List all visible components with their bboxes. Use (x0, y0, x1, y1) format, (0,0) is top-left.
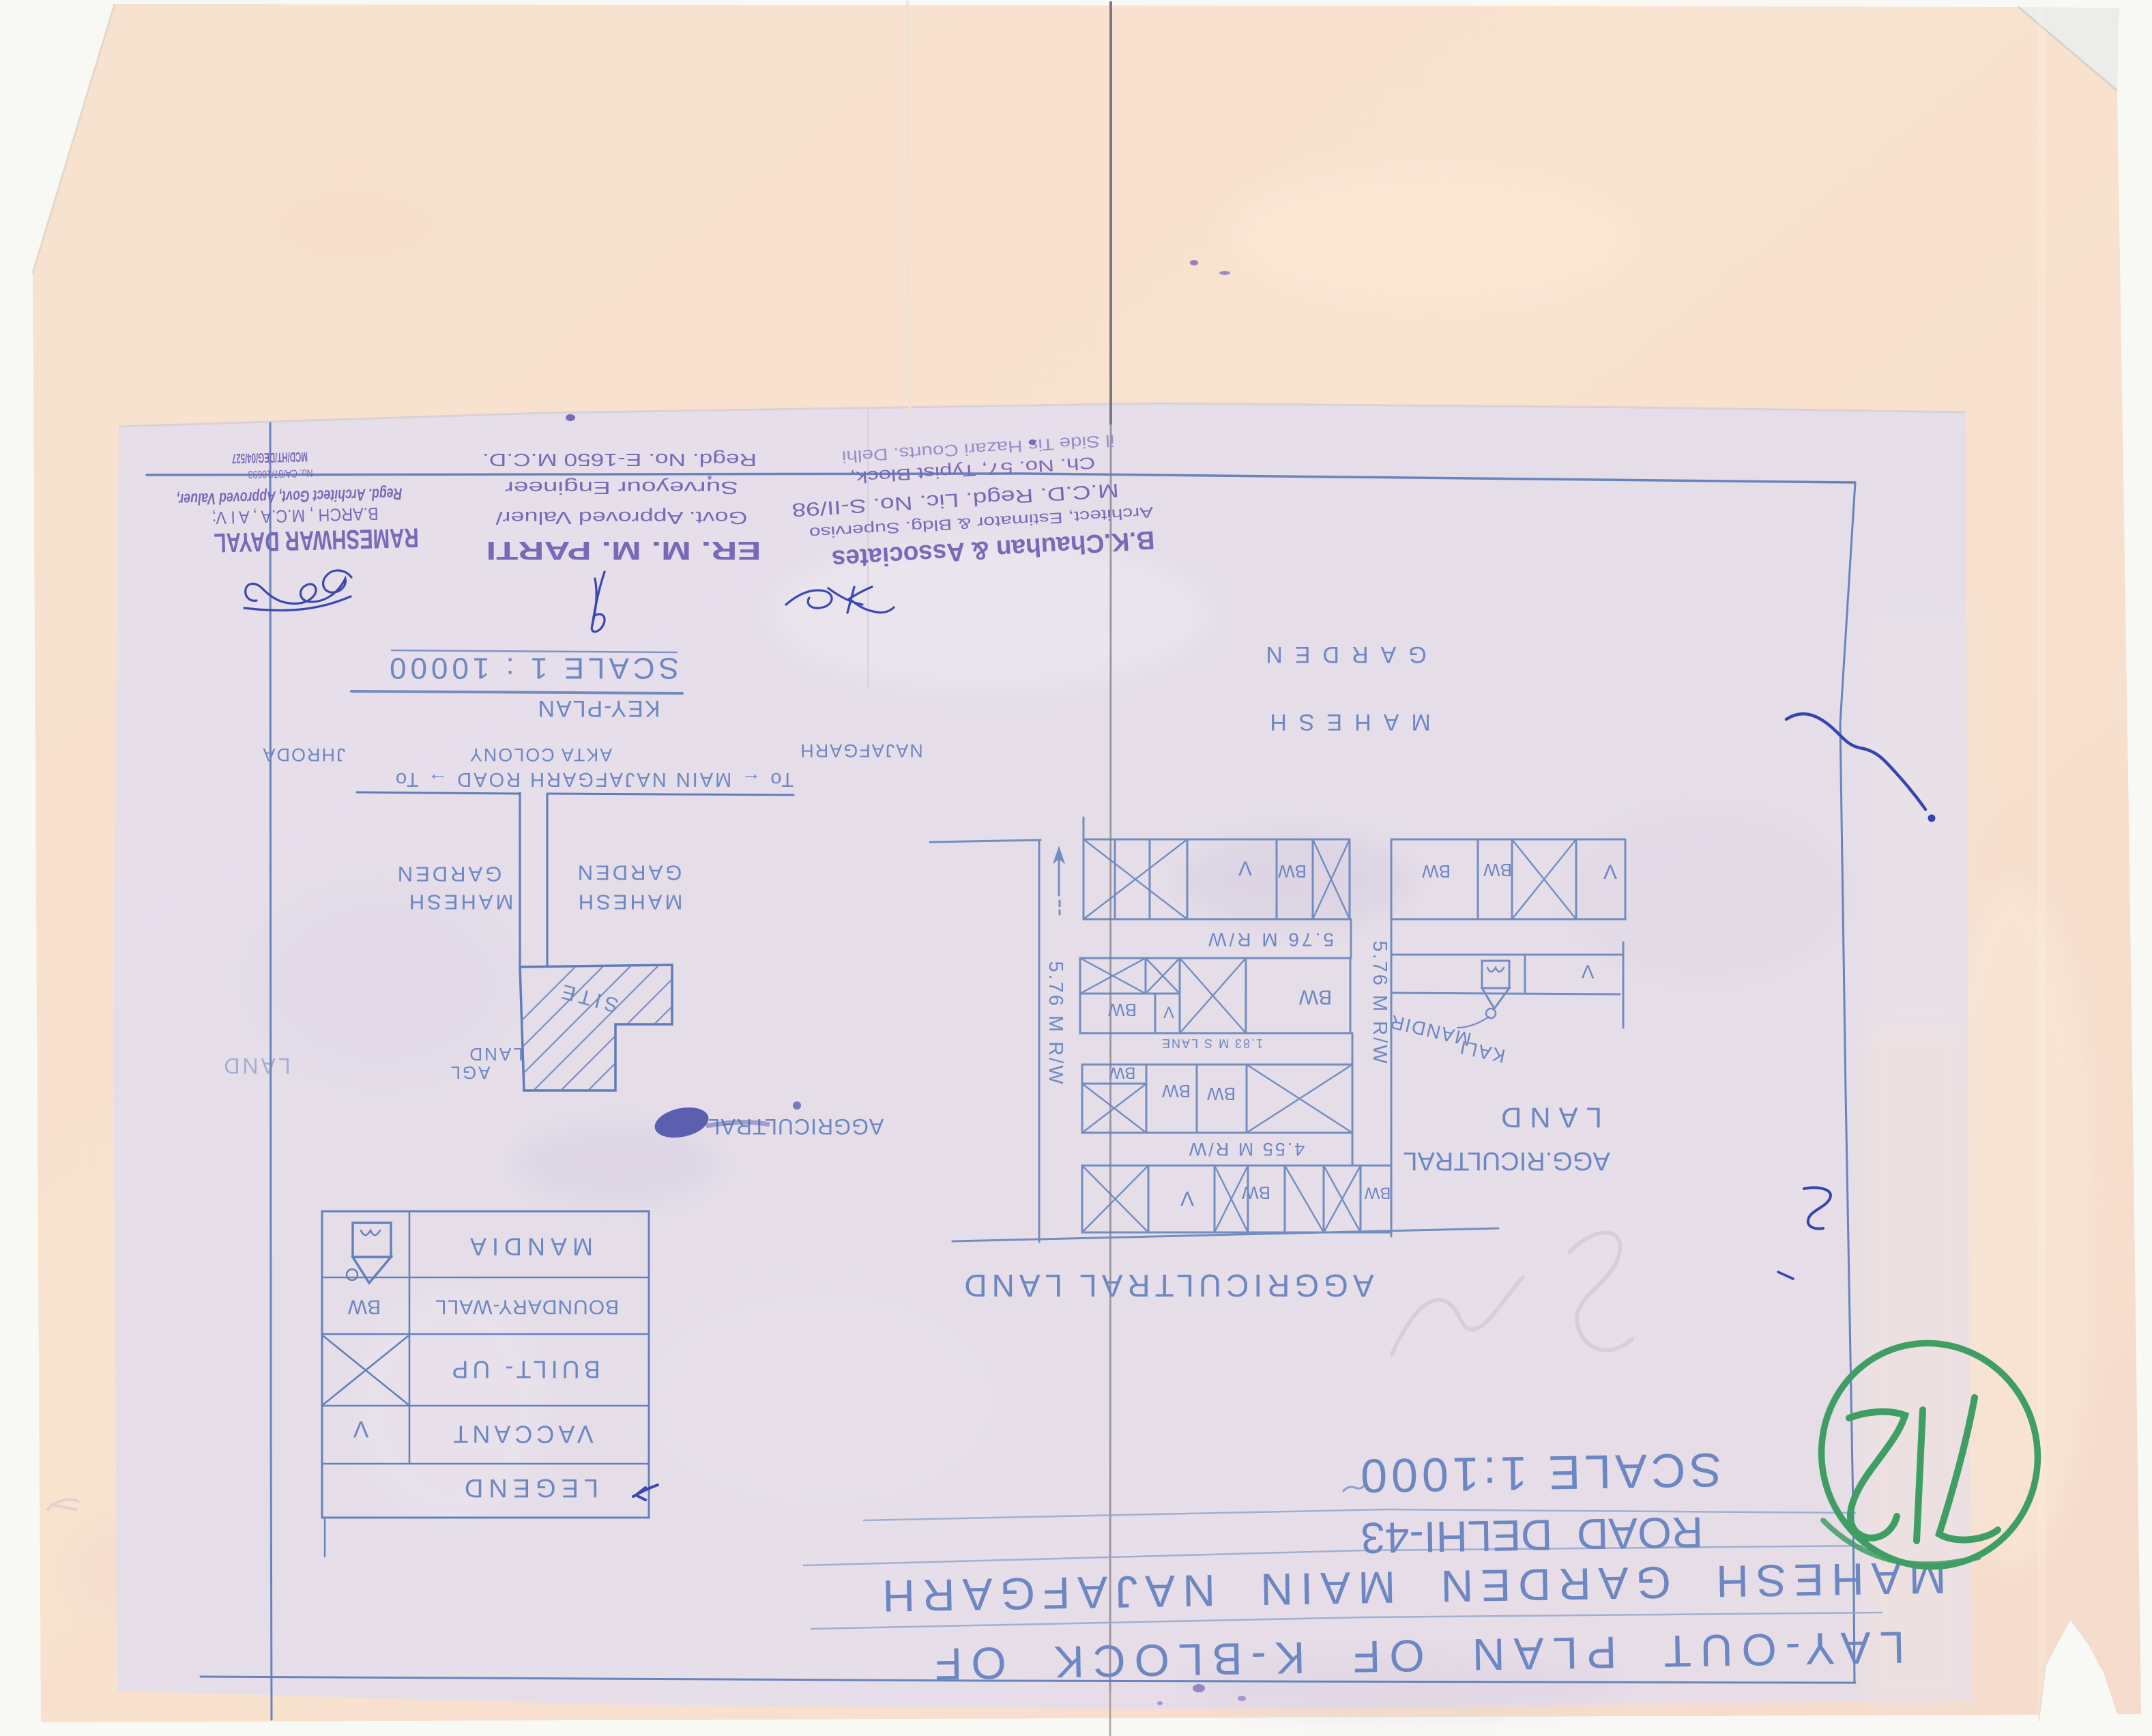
svg-text:JHRODA: JHRODA (261, 744, 345, 765)
svg-text:BW: BW (1278, 861, 1307, 882)
svg-text:ROAD DELHI-43: ROAD DELHI-43 (1361, 1507, 1704, 1563)
svg-text:MCD/HT/DEG/04/527: MCD/HT/DEG/04/527 (232, 449, 308, 466)
svg-text:BW: BW (1242, 1183, 1270, 1203)
svg-text:V: V (353, 1416, 368, 1442)
svg-text:BW: BW (1483, 860, 1512, 880)
svg-text:MANDIA: MANDIA (465, 1233, 593, 1261)
svg-text:BW: BW (1108, 1000, 1137, 1020)
svg-text:VACCANT: VACCANT (449, 1421, 593, 1449)
svg-text:Surveyour Engineer: Surveyour Engineer (505, 478, 738, 498)
svg-text:Govt. Approved Valuer/: Govt. Approved Valuer/ (495, 508, 747, 528)
svg-text:AGG.RICULTRAL: AGG.RICULTRAL (1403, 1146, 1610, 1175)
svg-text:SCALE 1:1000: SCALE 1:1000 (1356, 1443, 1721, 1503)
svg-text:V: V (1180, 1187, 1194, 1210)
svg-text:4.55 M R/W: 4.55 M R/W (1187, 1139, 1305, 1159)
svg-text:BW: BW (1422, 861, 1451, 882)
svg-text:BOUNDARY-WALL: BOUNDARY-WALL (435, 1296, 619, 1318)
svg-text:LAND: LAND (221, 1054, 290, 1078)
svg-text:BW: BW (1364, 1184, 1391, 1202)
svg-text:NAJAFGARH: NAJAFGARH (799, 740, 923, 761)
svg-text:GARDEN: GARDEN (575, 861, 682, 885)
svg-text:BW: BW (1207, 1084, 1236, 1104)
svg-text:1.83 M S LANE: 1.83 M S LANE (1161, 1037, 1263, 1050)
svg-text:BW: BW (1298, 986, 1332, 1009)
svg-text:BW: BW (1162, 1081, 1191, 1101)
svg-text:LAND: LAND (1493, 1102, 1602, 1134)
svg-text:To ← MAIN NAJAFGARH ROAD → To: To ← MAIN NAJAFGARH ROAD → To (394, 768, 794, 790)
svg-text:AGGRICULTRAL LAND: AGGRICULTRAL LAND (959, 1268, 1373, 1303)
svg-text:5.76 M R/W: 5.76 M R/W (1045, 961, 1066, 1086)
svg-text:5.76 M R/W: 5.76 M R/W (1369, 940, 1391, 1065)
svg-text:AKTA COLONY: AKTA COLONY (469, 744, 613, 765)
svg-text:MAHESH: MAHESH (1257, 709, 1430, 735)
svg-text:No: CA/87/10693: No: CA/87/10693 (248, 467, 312, 480)
svg-text:BUILT- UP: BUILT- UP (448, 1356, 600, 1384)
svg-text:GARDEN: GARDEN (1253, 641, 1426, 667)
svg-text:RAMESHWAR DAYAL: RAMESHWAR DAYAL (214, 522, 419, 558)
svg-text:AGL: AGL (448, 1062, 490, 1083)
svg-text:BW: BW (347, 1296, 381, 1318)
svg-text:MAHESH: MAHESH (407, 891, 514, 914)
svg-text:LEGEND: LEGEND (459, 1473, 598, 1502)
svg-text:SCALE 1 : 10000: SCALE 1 : 10000 (386, 652, 679, 685)
svg-text:Regd. No. E-1650 M.C.D.: Regd. No. E-1650 M.C.D. (482, 450, 757, 470)
svg-text:V: V (1581, 961, 1594, 983)
svg-text:BW: BW (1109, 1064, 1135, 1082)
svg-text:V: V (1163, 1003, 1174, 1022)
svg-text:MAHESH: MAHESH (576, 891, 683, 914)
svg-text:LAND: LAND (467, 1044, 523, 1065)
svg-text:ER. M. M. PARTI: ER. M. M. PARTI (486, 536, 761, 564)
svg-text:5.76 M R/W: 5.76 M R/W (1206, 929, 1334, 951)
svg-text:KEY-PLAN: KEY-PLAN (536, 695, 660, 721)
svg-text:V: V (1238, 857, 1252, 880)
svg-text:V: V (1603, 860, 1617, 883)
svg-text:AGGRICULTRAL: AGGRICULTRAL (708, 1114, 884, 1139)
svg-text:GARDEN: GARDEN (395, 863, 502, 886)
